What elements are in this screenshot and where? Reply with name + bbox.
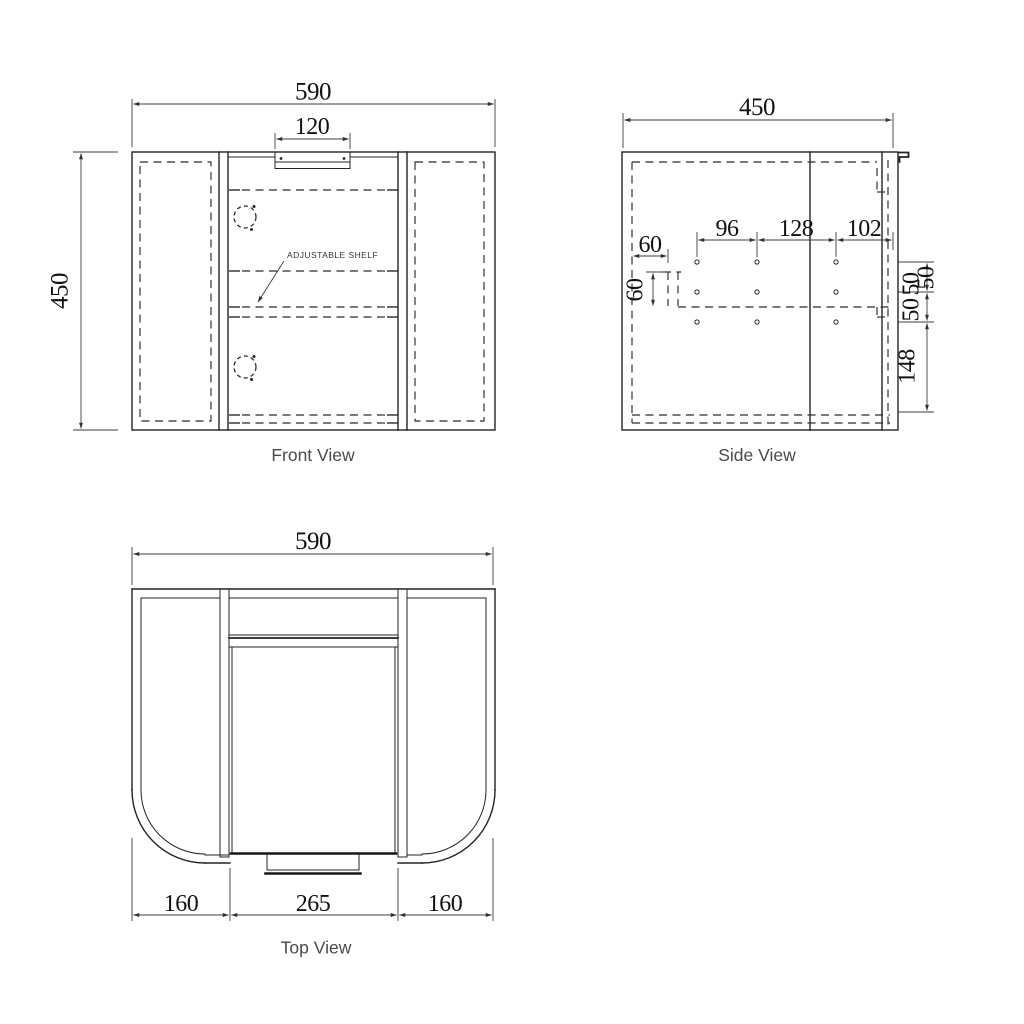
row-gap-c-value: 50 [899, 298, 925, 322]
front-view-outline [132, 152, 495, 430]
shelf-lines [229, 190, 398, 423]
offset-dimensions: 60 60 [623, 232, 671, 306]
front-height-dimension: 450 [47, 152, 119, 430]
front-height-value: 450 [47, 273, 74, 309]
front-view: ADJUSTABLE SHELF 590 450 120 Front View [47, 79, 496, 466]
side-view: 450 96 128 102 60 60 [622, 94, 940, 465]
top-view-mullions [220, 589, 407, 857]
hinge-bottom-icon [234, 355, 256, 381]
shelf-pin-holes [695, 260, 838, 324]
top-width-dimension: 590 [132, 528, 493, 585]
row-gap-b-value: 50 [899, 272, 925, 296]
bottom-panel-hidden-line [229, 415, 398, 423]
adjustable-shelf-label: ADJUSTABLE SHELF [287, 250, 378, 260]
hinge-top-icon [234, 205, 256, 231]
adjustable-shelf-callout: ADJUSTABLE SHELF [258, 250, 378, 302]
top-view-shell [132, 589, 495, 863]
handle-width-dimension: 120 [275, 114, 350, 149]
offset-vertical-value: 60 [623, 278, 649, 302]
hole-spacing-b-value: 128 [779, 216, 814, 242]
row-gap-dimension-chain: 50 50 50 148 [895, 262, 940, 412]
front-width-value: 590 [295, 79, 331, 106]
top-width-value: 590 [295, 528, 331, 555]
top-right-section-value: 160 [428, 891, 463, 917]
adjustable-shelf-line [229, 307, 398, 317]
cabinet-technical-drawing: ADJUSTABLE SHELF 590 450 120 Front View [0, 0, 1024, 1024]
handle-recess [275, 152, 350, 169]
side-depth-dimension: 450 [623, 94, 893, 148]
hole-spacing-c-value: 102 [847, 216, 882, 242]
side-depth-value: 450 [739, 94, 775, 121]
side-hidden-lines [632, 160, 890, 425]
side-view-title: Side View [718, 445, 796, 465]
wall-rail-hook [898, 153, 909, 163]
bottom-gap-value: 148 [895, 349, 921, 384]
hole-spacing-a-value: 96 [716, 216, 740, 242]
top-section-dimension-chain: 160 265 160 [132, 838, 493, 921]
front-view-title: Front View [271, 445, 355, 465]
handle-width-value: 120 [295, 114, 330, 140]
top-left-section-value: 160 [164, 891, 199, 917]
handle-lip [266, 855, 361, 874]
top-view-door [229, 635, 398, 874]
front-hidden-panels [140, 162, 484, 421]
top-view-title: Top View [281, 938, 352, 958]
offset-horizontal-value: 60 [639, 232, 663, 258]
top-center-section-value: 265 [296, 891, 331, 917]
top-view: 590 160 265 160 Top View [132, 528, 495, 958]
hole-spacing-dimensions: 96 128 102 [697, 216, 893, 257]
side-view-outline [622, 152, 909, 430]
